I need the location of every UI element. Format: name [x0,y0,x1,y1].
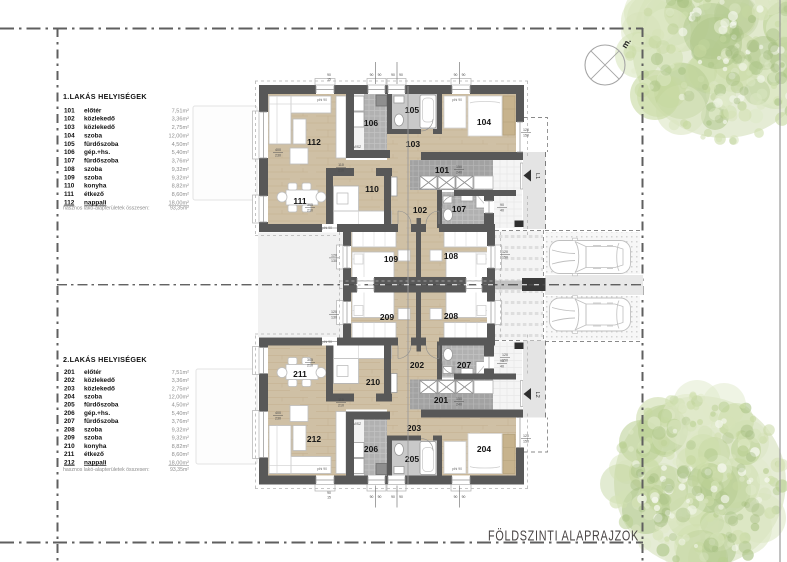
svg-text:208: 208 [64,426,75,433]
svg-text:305: 305 [307,203,313,207]
svg-text:130: 130 [331,315,337,319]
svg-text:90: 90 [500,203,504,207]
svg-text:8,60m²: 8,60m² [172,452,190,458]
svg-text:208: 208 [444,311,458,321]
svg-text:109: 109 [384,254,398,264]
svg-text:207: 207 [64,418,75,425]
svg-text:8,60m²: 8,60m² [172,192,190,198]
svg-text:8,82m²: 8,82m² [172,184,190,190]
svg-text:205: 205 [405,454,419,464]
svg-text:pihi 90: pihi 90 [322,340,332,344]
svg-text:206: 206 [64,410,75,417]
svg-text:fürdőszoba: fürdőszoba [84,418,119,425]
svg-text:93,35m²: 93,35m² [170,206,189,212]
svg-text:202: 202 [64,377,75,384]
svg-text:211: 211 [64,451,75,458]
svg-text:12,00m²: 12,00m² [168,395,189,401]
svg-text:105: 105 [405,105,419,115]
svg-text:fürdőszoba: fürdőszoba [84,158,119,165]
svg-text:40: 40 [500,364,504,368]
svg-text:konyha: konyha [84,183,107,190]
svg-text:230: 230 [275,153,281,157]
svg-text:gép.+hs.: gép.+hs. [84,149,110,156]
svg-text:90: 90 [391,73,395,77]
svg-text:2,75m²: 2,75m² [172,125,190,131]
svg-text:110: 110 [365,184,379,194]
svg-text:15: 15 [327,496,331,500]
svg-text:210: 210 [366,377,380,387]
svg-text:9,32m²: 9,32m² [172,436,190,442]
svg-text:111: 111 [293,196,307,206]
svg-text:90: 90 [462,73,466,77]
svg-text:étkező: étkező [84,451,104,458]
svg-text:201: 201 [434,395,448,405]
svg-text:fürdőszoba: fürdőszoba [84,402,119,409]
svg-text:150: 150 [523,439,529,443]
svg-text:nappali: nappali [84,459,107,466]
svg-text:210: 210 [64,443,75,450]
svg-text:5,40m²: 5,40m² [172,150,190,156]
svg-text:130: 130 [331,259,337,263]
svg-text:szoba: szoba [84,394,103,401]
svg-text:8,82m²: 8,82m² [172,444,190,450]
svg-text:konyha: konyha [84,443,107,450]
svg-text:109: 109 [64,174,75,181]
svg-text:pihi 90: pihi 90 [317,467,327,471]
svg-text:1.LAKÁS HELYISÉGEK: 1.LAKÁS HELYISÉGEK [63,92,147,101]
svg-text:400: 400 [275,148,281,152]
svg-text:108: 108 [64,166,75,173]
svg-text:fürdőszoba: fürdőszoba [84,141,119,148]
svg-text:207: 207 [457,360,471,370]
svg-text:107: 107 [64,158,75,165]
svg-text:101: 101 [64,107,75,114]
svg-text:150: 150 [456,397,462,401]
svg-text:90: 90 [462,495,466,499]
svg-text:3,36m²: 3,36m² [172,117,190,123]
svg-text:90: 90 [399,495,403,499]
svg-text:203: 203 [64,385,75,392]
svg-text:150: 150 [502,255,508,259]
svg-text:étkező: étkező [84,191,104,198]
svg-text:201: 201 [64,369,75,376]
svg-text:204: 204 [477,444,491,454]
svg-text:107: 107 [452,204,466,214]
svg-text:előtér: előtér [84,369,102,376]
svg-text:106: 106 [64,149,75,156]
svg-text:150: 150 [523,133,529,137]
svg-text:3,76m²: 3,76m² [172,419,190,425]
svg-text:120: 120 [502,353,508,357]
svg-text:szoba: szoba [84,132,103,139]
svg-text:120: 120 [502,250,508,254]
svg-text:209: 209 [380,312,394,322]
svg-text:240: 240 [456,170,462,174]
svg-text:közlekedő: közlekedő [84,377,115,384]
svg-text:közlekedő: közlekedő [84,116,115,123]
svg-text:90: 90 [327,491,331,495]
svg-text:209: 209 [64,435,75,442]
svg-text:szoba: szoba [84,426,103,433]
svg-text:102: 102 [413,205,427,215]
svg-text:211: 211 [293,369,307,379]
svg-text:101: 101 [435,165,449,175]
svg-text:M/SZ: M/SZ [353,422,361,426]
svg-text:103: 103 [64,124,75,131]
svg-text:206: 206 [364,444,378,454]
svg-text:90: 90 [454,73,458,77]
svg-text:2.LAKÁS HELYISÉGEK: 2.LAKÁS HELYISÉGEK [63,355,147,364]
svg-text:3,76m²: 3,76m² [172,159,190,165]
svg-text:előtér: előtér [84,107,102,114]
svg-text:3,36m²: 3,36m² [172,378,190,384]
svg-text:9,32m²: 9,32m² [172,175,190,181]
svg-text:112: 112 [307,137,321,147]
svg-text:202: 202 [410,360,424,370]
svg-text:FÖLDSZINTI ALAPRAJZOK: FÖLDSZINTI ALAPRAJZOK [488,527,639,545]
svg-text:203: 203 [407,423,421,433]
svg-text:7,51m²: 7,51m² [172,108,190,114]
svg-text:pihi 90: pihi 90 [317,98,327,102]
svg-text:400: 400 [275,411,281,415]
svg-text:4,50m²: 4,50m² [172,403,190,409]
svg-text:90: 90 [370,73,374,77]
svg-text:4,50m²: 4,50m² [172,142,190,148]
svg-text:gép.+hs.: gép.+hs. [84,410,110,417]
svg-text:közlekedő: közlekedő [84,124,115,131]
svg-text:105: 105 [64,141,75,148]
svg-text:104: 104 [64,132,75,139]
svg-text:212: 212 [64,459,75,466]
svg-text:L1: L1 [534,173,540,179]
svg-text:18,00m²: 18,00m² [168,460,189,466]
svg-text:közlekedő: közlekedő [84,385,115,392]
svg-text:204: 204 [64,394,75,401]
svg-text:szoba: szoba [84,166,103,173]
svg-text:120: 120 [523,434,529,438]
svg-text:104: 104 [477,117,491,127]
svg-text:120: 120 [523,128,529,132]
svg-text:110: 110 [64,183,75,190]
svg-text:szoba: szoba [84,435,103,442]
svg-text:210: 210 [307,208,313,212]
svg-text:M/SZ: M/SZ [353,145,361,149]
svg-text:90: 90 [500,359,504,363]
svg-text:93,35m²: 93,35m² [170,467,189,473]
svg-text:108: 108 [444,251,458,261]
svg-text:210: 210 [338,168,344,172]
svg-text:120: 120 [331,254,337,258]
svg-text:12,00m²: 12,00m² [168,133,189,139]
svg-text:pihi 90: pihi 90 [452,467,462,471]
svg-text:150: 150 [456,165,462,169]
svg-text:90: 90 [370,495,374,499]
svg-text:9,32m²: 9,32m² [172,427,190,433]
svg-text:pihi 90: pihi 90 [322,226,332,230]
svg-text:szoba: szoba [84,174,103,181]
svg-text:hasznos lakó-alapterületek öss: hasznos lakó-alapterületek összesen: [63,467,150,473]
svg-text:106: 106 [364,118,378,128]
svg-text:305: 305 [307,358,313,362]
svg-text:90: 90 [399,73,403,77]
svg-text:240: 240 [456,402,462,406]
svg-text:205: 205 [64,402,75,409]
svg-text:110: 110 [338,163,344,167]
svg-text:40: 40 [500,208,504,212]
svg-text:90: 90 [378,495,382,499]
svg-text:5,40m²: 5,40m² [172,411,190,417]
svg-text:110: 110 [338,398,344,402]
svg-text:90: 90 [391,495,395,499]
svg-text:L2: L2 [534,392,540,398]
svg-text:212: 212 [307,434,321,444]
svg-text:90: 90 [454,495,458,499]
svg-text:102: 102 [64,116,75,123]
svg-text:210: 210 [338,403,344,407]
svg-text:210: 210 [307,363,313,367]
svg-text:7,51m²: 7,51m² [172,370,190,376]
svg-text:15: 15 [327,78,331,82]
svg-text:pihi 90: pihi 90 [452,98,462,102]
svg-text:230: 230 [275,416,281,420]
svg-text:111: 111 [64,191,74,198]
svg-text:9,32m²: 9,32m² [172,167,190,173]
svg-text:90: 90 [327,73,331,77]
svg-text:2,75m²: 2,75m² [172,386,190,392]
svg-text:90: 90 [378,73,382,77]
svg-text:120: 120 [331,310,337,314]
svg-text:hasznos lakó-alapterületek öss: hasznos lakó-alapterületek összesen: [63,206,150,212]
